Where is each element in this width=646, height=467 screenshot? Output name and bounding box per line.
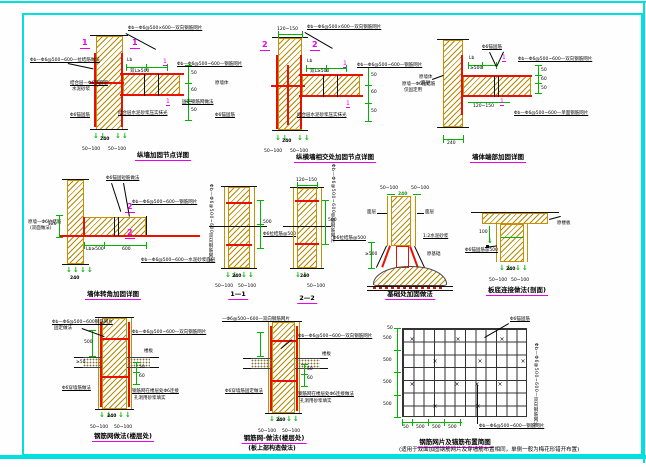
annotation-label: Φb—Φ6@500~600—钢筋网片 (479, 424, 544, 430)
dim-tick (365, 85, 372, 86)
rebar-line (295, 200, 319, 202)
dim-label: 50 (541, 86, 547, 92)
annotation-label: —Φ6@500~600—双向钢筋网片 (222, 317, 290, 323)
dim-label: ≥500 (365, 252, 377, 258)
dim-tick (278, 31, 279, 38)
cut-mark: 1 (500, 99, 504, 106)
wall-hatch (443, 40, 463, 127)
dim-label: 120 (48, 222, 57, 228)
dim-label: Lb (307, 59, 312, 65)
section-marker: 2 (310, 41, 320, 51)
dim-label: 50 (139, 365, 145, 371)
section-marker: 2 (125, 229, 135, 239)
cad-sheet: Lb 双L≥500 50 60 50 1 1 1 1 Φb—Φ6@500×600… (0, 0, 646, 467)
dim-label: 240 (100, 137, 109, 143)
down-arrow: ↓ (487, 238, 494, 245)
dim-line (443, 139, 463, 140)
down-arrows: ↓↓ (118, 412, 132, 419)
dim-label: 50~100 (108, 147, 126, 153)
down-arrows: ↓↓ (115, 133, 129, 140)
rebar-line (299, 95, 363, 97)
leader-line (417, 213, 424, 214)
dim-label: 50~100 (215, 284, 233, 290)
dim-tick (126, 64, 127, 71)
annotation-label: 孔洞用砂浆填实 (300, 399, 332, 405)
plan-mesh-layout: × × × × × × × × × × × × 50 500 500 500 5… (375, 315, 615, 457)
annotation-label: 水泥砂浆 (72, 87, 90, 93)
dim-label: 500 (383, 380, 392, 386)
dim-tick (257, 332, 264, 333)
dim-label: 240 (300, 274, 309, 280)
section-marker: 2 (260, 41, 270, 51)
wall-cap-line (95, 317, 134, 318)
annotation-label: 楼板 (144, 349, 153, 355)
slab-ext-line (320, 358, 328, 359)
dim-tick (394, 350, 401, 351)
dim-label: 500 (84, 340, 93, 346)
footing-hatch (373, 266, 447, 286)
anchor-mark: × (409, 382, 414, 388)
detail-5-section-1-1: 500 Φb—Φ6@500~600双向钢筋网片 Φ6拉结筋@500 ↓↓ ↓↓ … (205, 170, 283, 300)
rebar-line (276, 55, 278, 129)
dim-line (402, 422, 462, 423)
dim-line (126, 67, 168, 68)
stirrup-line (323, 75, 324, 97)
anchor-mark: × (432, 404, 437, 410)
stirrup-line (144, 74, 145, 96)
dim-label: ≥50 (76, 360, 86, 366)
annotation-label: Φb—Φ6@500~600—拉结筋做法 (30, 58, 100, 64)
dim-label: Lb (127, 58, 132, 64)
rebar-line (226, 244, 252, 246)
wall-hatch (391, 196, 411, 246)
dim-tick (185, 83, 192, 84)
annotation-label: 原墙体 (419, 75, 433, 81)
dim-label: 240 (276, 418, 285, 424)
dim-tick (301, 364, 308, 365)
annotation-label: Φb—Φ6@500~600—双向钢筋网片 (518, 57, 592, 63)
slab-ext-line (150, 367, 159, 368)
cut-mark: 1 (163, 59, 167, 66)
dim-tick (84, 242, 85, 249)
dim-tick (133, 384, 140, 385)
detail-3-wall-end: Lb ≥500 120~150 50 60 50 1 1 Φ6锚固筋 Φb—Φ6… (418, 35, 646, 165)
wall-cap-line (437, 127, 469, 128)
dim-tick (460, 419, 461, 426)
mortar-layer-line (254, 187, 255, 268)
dim-label: 120~150 (473, 104, 494, 110)
rebar-line (462, 95, 532, 97)
dim-tick (444, 419, 445, 426)
annotation-label: 原基础 (427, 252, 441, 258)
dim-tick (302, 31, 303, 38)
cut-mark: 1 (502, 55, 506, 62)
anchor-mark: × (454, 382, 459, 388)
splice-line (498, 76, 499, 97)
dim-label: 120~150 (277, 27, 298, 33)
mortar-layer-line (527, 224, 528, 262)
dim-label: 120~150 (296, 178, 317, 184)
dim-tick (412, 419, 413, 426)
dim-label: 240 (70, 276, 79, 282)
detail-4-wall-corner: 2 2 Φ6锚固短筋做法 Φb—Φ6@500~600—钢筋网片 Φb—Φ6@50… (28, 170, 223, 300)
dim-line (325, 200, 326, 244)
dim-label: 600 (122, 247, 131, 253)
slab-hatch (84, 217, 146, 236)
dim-label: 60 (371, 90, 377, 96)
annotation-label: Φb—Φ6@500×600—双向钢筋网片 (128, 26, 202, 32)
detail-7-foundation: 50~100 50~100 240 面层 面层 ≥500 1:2水泥砂浆 原基础… (365, 180, 470, 298)
leader-line (477, 385, 478, 424)
dim-tick (535, 65, 542, 66)
rebar-line (120, 94, 184, 96)
caption: 墙体端部加固详图 (470, 151, 526, 163)
rebar-line (83, 217, 85, 236)
dim-label: 50~100 (82, 147, 100, 153)
splice-line (494, 76, 495, 97)
detail-8-slab-soffit: 原楼板 ↓ 100 Φ6锚固筋@500 ↓↓ ↓↓ 240 50~100 50~… (465, 185, 580, 295)
down-arrows: ↓↓ (66, 267, 80, 274)
slab-ext-line (243, 368, 251, 369)
rebar-leg (382, 245, 391, 267)
annotation-label: Φ6锚固筋 (482, 45, 502, 51)
down-arrows: ↓↓ (286, 416, 300, 423)
dim-tick (185, 120, 192, 121)
dim-line (368, 67, 369, 121)
floor-slab (251, 358, 272, 369)
mortar-layer-line (224, 187, 225, 268)
dim-label: 500 (432, 425, 441, 431)
detail-9-mesh-floor: 500 ≥50 50 60 Φb—Φ6@500~600钢筋网片 固定做法 Φb—… (52, 312, 212, 442)
down-arrows: ↓↓ (80, 267, 94, 274)
slab-ext-line (243, 358, 251, 359)
annotation-label: 面层 (421, 81, 430, 87)
rebar-line (462, 75, 532, 77)
annotation-label: Φ6锚固短筋做法 (106, 176, 139, 182)
stirrup-line (158, 74, 159, 96)
dim-label: 50~100 (264, 149, 282, 155)
rebar-leg (410, 246, 419, 268)
annotation-label: Φ6穿墙筋固定做法 (225, 389, 263, 395)
dim-label: 50~100 (411, 186, 429, 192)
beam-hatch (123, 74, 180, 96)
dim-label: 50 (371, 109, 377, 115)
dim-tick (468, 62, 469, 69)
mortar-layer-line (415, 196, 416, 246)
rebar-line (270, 340, 298, 342)
caption: 2—2 (297, 294, 317, 304)
dim-label: 240 (506, 267, 515, 273)
dim-label: 50 (541, 68, 547, 74)
caption-subtitle: (板上部构造做法) (248, 443, 296, 452)
leader-line (432, 75, 444, 80)
tie-line (209, 226, 267, 227)
slab-ext-line (320, 368, 328, 369)
wall-cap-line (221, 186, 257, 187)
dim-label: Lb≥500 (86, 247, 104, 253)
dim-label: 240 (447, 141, 456, 147)
dim-label: 50 (191, 108, 197, 114)
dim-tick (368, 242, 375, 243)
anchor-mark: × (520, 359, 525, 365)
dim-line (260, 332, 261, 356)
dim-label: 60 (139, 374, 145, 380)
wall-cap-line (62, 264, 89, 265)
dim-line (538, 65, 539, 93)
rebar-box (396, 246, 409, 268)
leader-line (377, 213, 387, 214)
dim-tick (368, 268, 375, 269)
annotation-label: 钢筋网在楼层处Φ6连接做法 (298, 392, 354, 398)
annotation-label: Φ6锚固筋 (70, 113, 90, 119)
dim-line (297, 185, 317, 186)
dim-tick (89, 356, 96, 357)
dim-label: 60 (307, 376, 313, 382)
wall-hatch (102, 318, 127, 409)
wall-cap-line (62, 179, 89, 180)
rebar-line (100, 376, 130, 378)
leader-line (111, 183, 121, 212)
caption: 墙体转角加固详图 (85, 288, 141, 300)
caption: 纵墙加固节点详图 (135, 149, 191, 161)
beam-hatch (463, 76, 531, 97)
annotation-label: Φb—Φ6@500~600—钢筋网片 (357, 63, 422, 69)
dim-label: Lb (469, 56, 474, 62)
wall-cap-line (437, 39, 469, 40)
wall-cap-line (290, 268, 324, 269)
dim-line (59, 215, 60, 237)
note-text: (适用于双面加固钢筋网片及穿墙筋布置相同，单侧一般为梅花形错开布置) (399, 447, 579, 454)
beam-hatch (302, 75, 360, 97)
caption: 基础处加固做法 (385, 288, 435, 300)
leader-line (549, 216, 561, 220)
rebar-line (94, 53, 96, 127)
annotation-label: Φ6锚固筋@500 (465, 248, 498, 254)
dim-label: 50~100 (511, 278, 529, 284)
dim-label: 500 (448, 425, 457, 431)
dim-tick (322, 200, 329, 201)
dim-line (136, 362, 137, 384)
slab-hatch (482, 213, 548, 224)
dim-label: 双L≥500 (310, 69, 329, 75)
caption: 钢筋网做法(楼层处) (92, 430, 154, 442)
wall-cap-line (265, 413, 302, 414)
annotation-label: Φb—Φ6@500~600—钢筋网片 (132, 200, 197, 206)
dim-tick (365, 103, 372, 104)
wall-hatch (67, 180, 84, 264)
dim-tick (394, 372, 401, 373)
dim-label: 240 (282, 139, 291, 145)
dim-tick (133, 362, 140, 363)
splice-line (114, 217, 115, 236)
dim-label: 50 (371, 73, 377, 79)
anchor-mark: × (499, 337, 504, 343)
annotation-label: Φb—Φ6@500~600—单面钢筋网片 (514, 111, 588, 117)
dim-label: 500 (416, 425, 425, 431)
annotation-label: Φb—Φ6@500~600钢筋网片 (52, 320, 113, 326)
detail-6-section-2-2: 120~150 Φb—Φ6@500~600单面钢筋网片 500 Φ6拉结筋@50… (283, 162, 358, 302)
dim-label: 100 (479, 230, 488, 236)
dim-tick (301, 374, 308, 375)
dim-tick (535, 83, 542, 84)
dim-tick (306, 65, 307, 72)
caption: 1—1 (228, 290, 248, 300)
dim-label: 500 (328, 218, 337, 224)
annotation-label: 结合层水泥砂浆压实抹光 (297, 113, 347, 119)
cut-mark: 1 (166, 99, 170, 106)
slab-ext-line (150, 357, 159, 358)
anchor-mark: × (409, 337, 414, 343)
down-arrows: ↓↓ (515, 265, 529, 272)
annotation-label: 结合层—Φ6钢筋网 (70, 81, 108, 87)
down-arrows: ↓↓ (241, 272, 255, 279)
dim-label: 50~100 (380, 186, 398, 192)
dim-tick (322, 244, 329, 245)
detail-10-mesh-floor-upper: 50 60 —Φ6@500~600—双向钢筋网片 Φb—Φ6@500~600—双… (222, 312, 382, 454)
annotation-label: Φ6锚固筋 (510, 317, 530, 323)
dim-label: 500 (383, 402, 392, 408)
dim-line (278, 34, 302, 35)
mortar-layer-line (496, 224, 497, 262)
dim-tick (463, 135, 464, 143)
annotation-label: Φ6穿墙筋做法 (62, 386, 91, 392)
annotation-label: Φb—Φ6@500~600—双向钢筋网片 (132, 330, 206, 336)
rebar-line (271, 85, 305, 87)
rebar-line (226, 202, 252, 204)
caption: 板底连接做法(剖面) (486, 284, 548, 296)
annotation-label: 1:2水泥砂浆 (423, 234, 448, 240)
annotation-label: 结合层水泥砂浆压实抹光 (118, 111, 168, 117)
rebar-line (100, 338, 130, 340)
wall-cap-line (90, 35, 128, 36)
dim-tick (104, 242, 105, 249)
mesh-grid (402, 328, 527, 417)
wall-hatch (228, 187, 250, 268)
wall-cap-line (90, 129, 128, 130)
rebar-line (295, 243, 319, 245)
dim-label: ≥500 (470, 66, 482, 72)
wall-cap-line (272, 130, 308, 131)
annotation-label: Φ6锚固筋 (215, 113, 235, 119)
dim-tick (56, 237, 63, 238)
slab-ext-line (74, 367, 83, 368)
wall-cap-line (290, 187, 324, 188)
annotation-label-vertical: Φb—Φ6@500~600—双向钢筋网片 (532, 343, 538, 428)
dim-label: 500 (263, 220, 272, 226)
dim-line (84, 245, 146, 246)
dim-tick (346, 65, 347, 72)
dim-label: 50 (191, 71, 197, 77)
wall-hatch (500, 224, 524, 262)
dim-tick (428, 419, 429, 426)
dim-label: 50~100 (238, 284, 256, 290)
dim-label: 240 (107, 414, 116, 420)
dim-label: 50 (387, 326, 393, 332)
tie-line (283, 226, 331, 227)
annotation-label-vertical: Φb—Φ6@500~600双向钢筋网片 (207, 184, 213, 256)
dim-tick (387, 194, 395, 195)
annotation-label: Φb—Φ6@500×600—双向钢筋网片 (307, 25, 381, 31)
rebar-line (287, 65, 289, 125)
dim-label: 60 (541, 77, 547, 83)
down-arrows: ↓↓ (297, 135, 311, 142)
stirrup-line (337, 75, 338, 97)
annotation-label: 面层 (367, 210, 376, 216)
splice-line (118, 217, 119, 236)
dim-tick (297, 182, 298, 189)
dim-label: 50~100 (307, 284, 325, 290)
section-marker: 1 (80, 39, 90, 49)
anchor-mark: × (477, 359, 482, 365)
dim-tick (317, 182, 318, 189)
wall-hatch (272, 322, 295, 413)
slab-cap-line (146, 216, 147, 237)
detail-2-cross-joint: 120~150 Φb—Φ6@500×600—双向钢筋网片 2 2 1 1 Lb … (215, 25, 450, 165)
annotation-label: 原楼板 (557, 221, 571, 227)
dim-label: 60 (191, 88, 197, 94)
dim-label: 双L≥500 (130, 69, 149, 75)
dim-label: 50 (403, 425, 409, 431)
rebar-line (270, 380, 298, 382)
annotation-label: 楼板 (322, 352, 331, 358)
dim-tick (535, 75, 542, 76)
dim-tick (413, 194, 421, 195)
dim-tick (301, 386, 308, 387)
dim-label: 240 (232, 274, 241, 280)
annotation-label-vertical: Φb—Φ6@500~600单面钢筋网片 (329, 164, 335, 224)
anchor-mark: × (432, 359, 437, 365)
dim-label: 50~100 (489, 278, 507, 284)
anchor-mark: × (455, 337, 460, 343)
annotation-label: Φb—Φ6@500~600—双向钢筋网片 (298, 334, 372, 340)
annotation-label: 原墙体 (215, 81, 229, 87)
detail-1-wall-joint: Lb 双L≥500 50 60 50 1 1 1 1 Φb—Φ6@500×600… (30, 25, 245, 165)
dim-tick (535, 93, 542, 94)
dim-label: 500 (383, 358, 392, 364)
dim-tick (146, 242, 147, 249)
slab-ext-line (74, 357, 83, 358)
annotation-label: 固定做法 (54, 326, 72, 332)
annotation-label: Φ6拉结筋@500 (333, 236, 366, 242)
dim-tick (257, 248, 264, 249)
dim-tick (257, 200, 264, 201)
dim-label: 50 (307, 367, 313, 373)
dim-tick (394, 395, 401, 396)
cut-mark: 1 (346, 101, 350, 108)
dim-label: 500 (383, 336, 392, 342)
mortar-layer-line (293, 188, 294, 268)
wall-cap-line (221, 268, 257, 269)
rebar-line (461, 55, 463, 115)
annotation-label: 面层 (425, 210, 434, 216)
dim-line (188, 65, 189, 121)
annotation-label: 钢筋网在楼层处Φ6连接 (132, 389, 179, 395)
leader-line (68, 63, 94, 69)
dim-tick (394, 328, 401, 329)
rebar-line (299, 74, 363, 76)
mortar-layer-line (387, 196, 388, 246)
sheet-outer-border-top (0, 1, 646, 3)
anchor-mark: × (497, 382, 502, 388)
dim-tick (257, 356, 264, 357)
dim-tick (365, 121, 372, 122)
dim-tick (394, 417, 401, 418)
tie-line (501, 237, 523, 238)
dim-tick (133, 372, 140, 373)
dim-tick (167, 64, 168, 71)
dim-tick (56, 215, 63, 216)
dim-line (304, 364, 305, 386)
